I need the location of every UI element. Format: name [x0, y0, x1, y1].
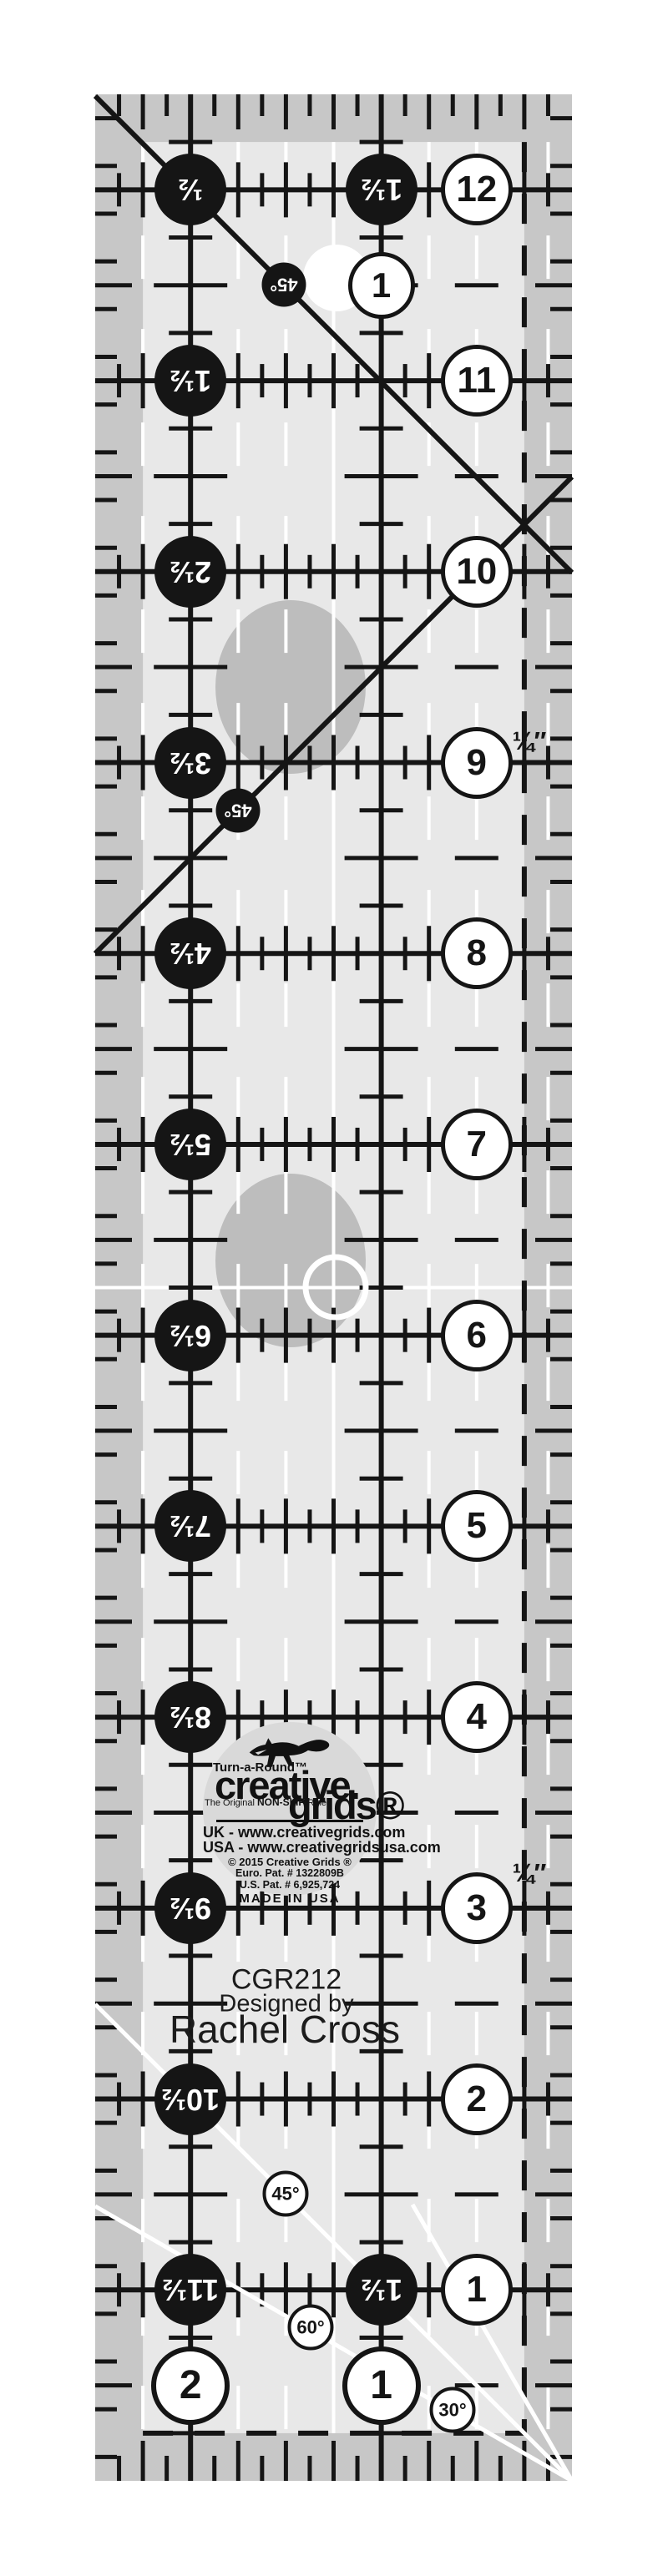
right-scale-label-12: 12 — [441, 154, 513, 225]
left-scale-label-3½: 3½ — [154, 727, 226, 799]
right-scale-label-8: 8 — [441, 917, 513, 989]
euro-patent-line: Euro. Pat. # 1322809B — [203, 1867, 377, 1879]
right-scale-label-7: 7 — [441, 1109, 513, 1180]
copyright-line: © 2015 Creative Grids ® — [203, 1856, 377, 1868]
right-scale-label-3: 3 — [441, 1872, 513, 1944]
diagonal-45-dot-top: 45° — [262, 263, 306, 307]
ruler-grid-graphics — [0, 0, 668, 2576]
right-scale-label-11: 11 — [441, 345, 513, 417]
right-scale-label-4: 4 — [441, 1681, 513, 1753]
left-scale-label-2½: 2½ — [154, 536, 226, 608]
angle-60-circle: 60° — [288, 2305, 334, 2351]
usa-website: USA - www.creativegridsusa.com — [203, 1839, 377, 1856]
badge-divider — [216, 1820, 363, 1822]
left-scale-label-8½: 8½ — [154, 1681, 226, 1753]
left-scale-label-10½: 10½ — [154, 2063, 226, 2135]
left-scale-label-6½: 6½ — [154, 1300, 226, 1371]
angle-30-circle: 30° — [430, 2387, 476, 2433]
quarter-inch-label-bottom: ¼″ — [513, 1858, 547, 1888]
top-column-label-white: 1 — [348, 252, 415, 319]
made-in-usa-label: MADE IN USA — [203, 1892, 377, 1906]
left-scale-label-½: ½ — [154, 154, 226, 225]
left-scale-label-1½: 1½ — [154, 345, 226, 417]
ruler-product-photo: ½1½2½3½4½5½6½7½8½9½10½11½121110987654321… — [0, 0, 668, 2576]
right-scale-label-1: 1 — [441, 2254, 513, 2326]
bottom-column-label-2: 2 — [151, 2346, 230, 2425]
diagonal-45-dot-mid: 45° — [216, 789, 261, 833]
bottom-column-label-1: 1 — [342, 2346, 421, 2425]
quarter-inch-label-top: ¼″ — [513, 726, 547, 756]
left-scale-label-4½: 4½ — [154, 917, 226, 989]
designer-name: Rachel Cross — [170, 2007, 400, 2052]
right-scale-label-6: 6 — [441, 1300, 513, 1371]
us-patent-line: U.S. Pat. # 6,925,724 — [203, 1879, 377, 1891]
left-scale-label-7½: 7½ — [154, 1490, 226, 1562]
right-scale-label-10: 10 — [441, 536, 513, 608]
right-scale-label-5: 5 — [441, 1490, 513, 1562]
creative-grids-logo-badge: Turn-a-Round™ creative. The Original NON… — [203, 1722, 377, 1896]
left-scale-label-5½: 5½ — [154, 1109, 226, 1180]
top-column-label-black: 1½ — [346, 154, 417, 225]
right-scale-label-2: 2 — [441, 2063, 513, 2135]
angle-45-circle: 45° — [263, 2171, 309, 2217]
right-scale-label-9: 9 — [441, 727, 513, 799]
left-scale-label-11½: 11½ — [154, 2254, 226, 2326]
bottom-column-label-black: 1½ — [346, 2254, 417, 2326]
